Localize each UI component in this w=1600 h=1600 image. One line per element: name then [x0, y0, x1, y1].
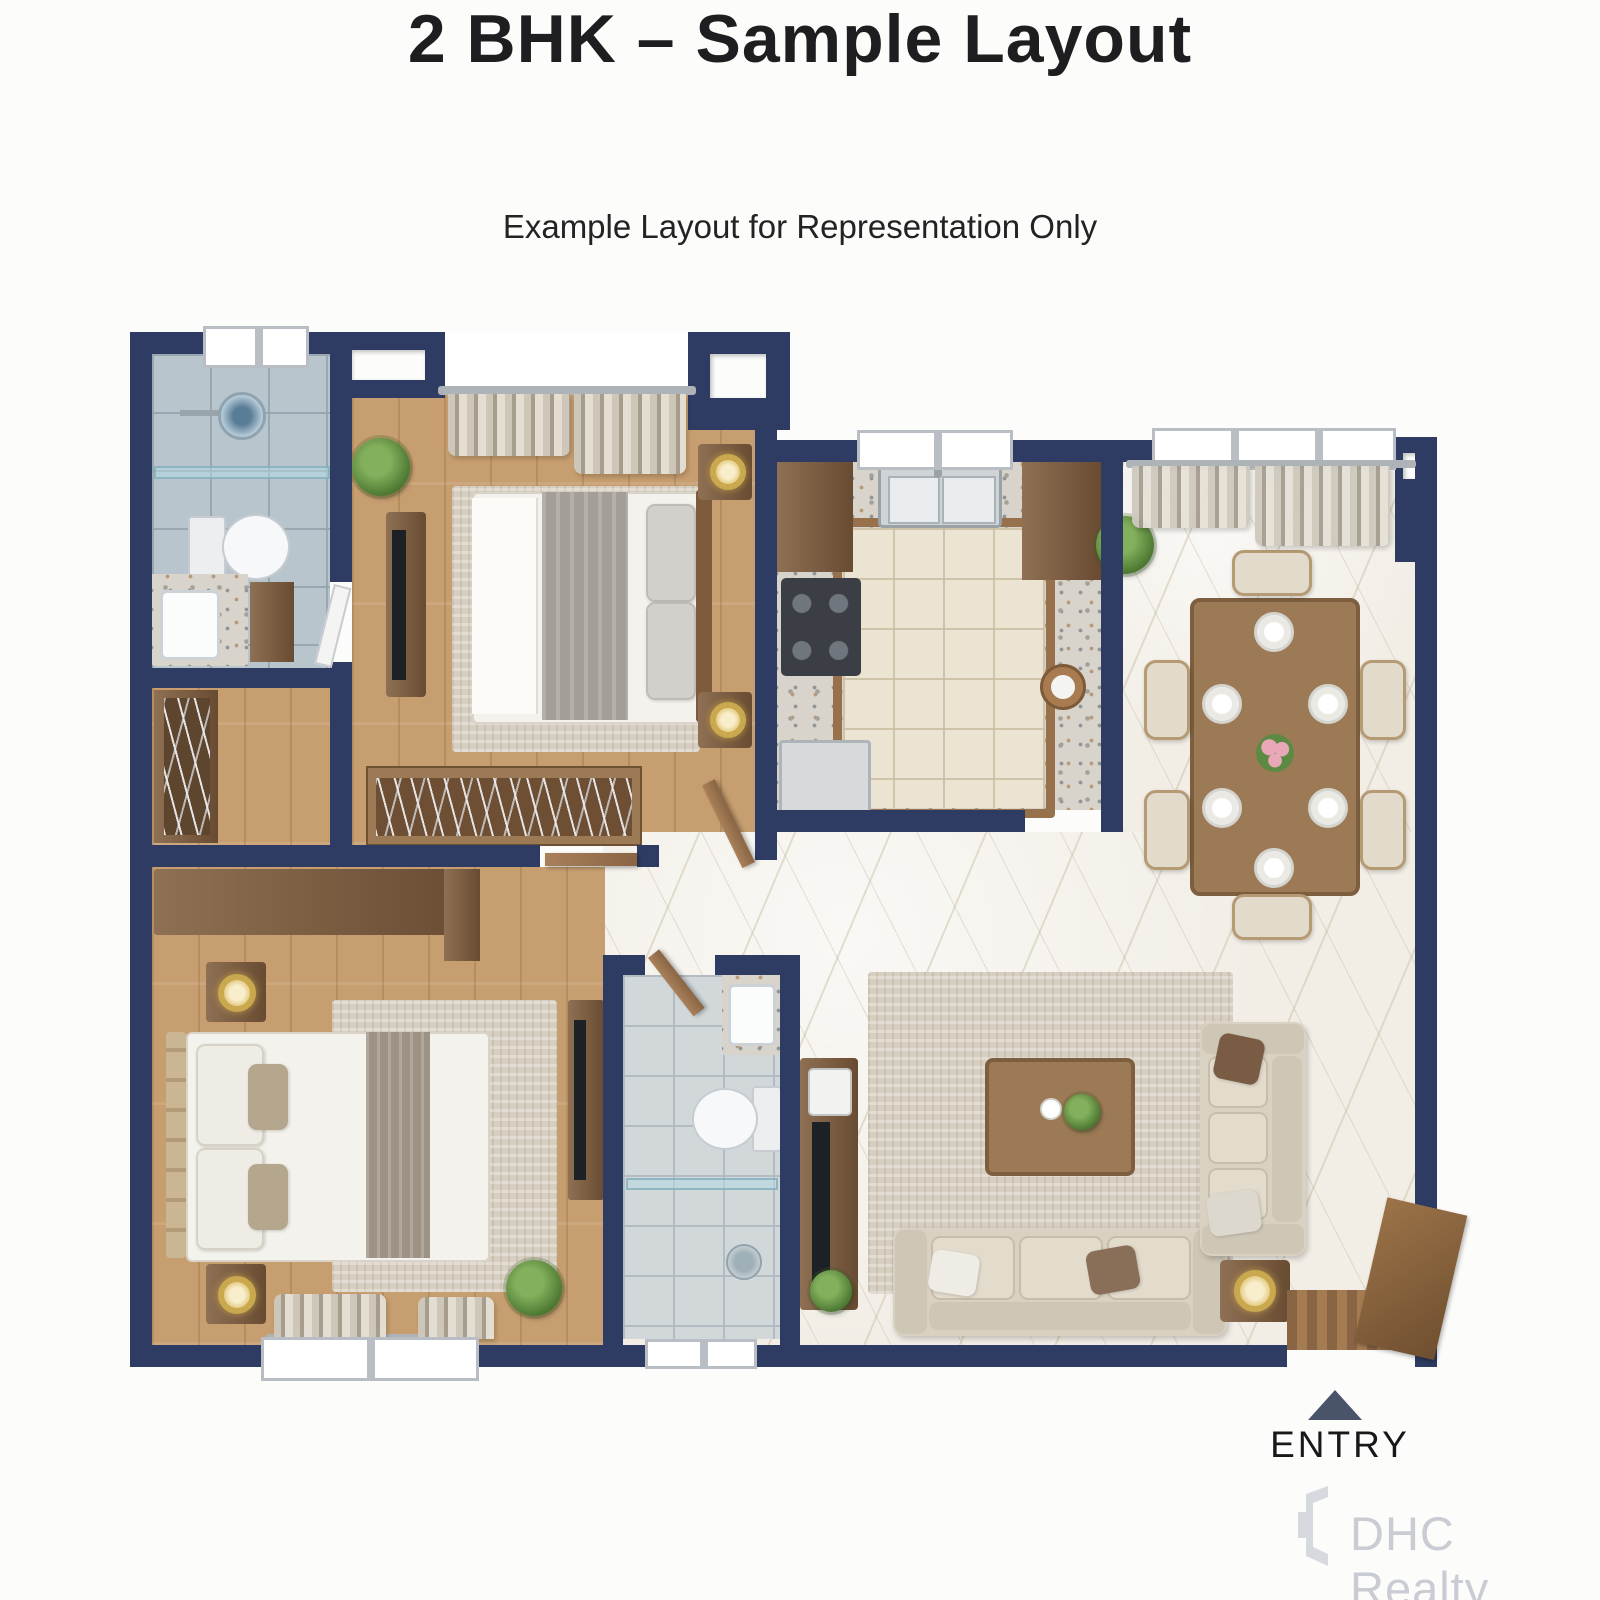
dining-chair: [1232, 550, 1312, 596]
plant: [506, 1260, 562, 1316]
wardrobe-hanging-rail: [164, 698, 210, 835]
dining-chair: [1144, 790, 1190, 870]
watermark-text: DHC Realty: [1350, 1506, 1600, 1600]
wall-kitchen-right: [1101, 440, 1123, 832]
tv-screen: [812, 1122, 830, 1287]
window-kitchen: [857, 430, 1013, 470]
pillow: [248, 1164, 288, 1230]
dining-chair: [1360, 660, 1406, 740]
wall-kitchen-bottom: [755, 810, 1025, 832]
wall-bath2-right: [780, 955, 800, 1345]
table-lamp: [710, 702, 746, 738]
bed-1-headboard: [696, 490, 712, 722]
wardrobe-rail-clothes: [376, 778, 632, 836]
plate: [1308, 788, 1348, 828]
table-lamp: [218, 1276, 256, 1314]
dining-chair: [1232, 894, 1312, 940]
wall-bedroom-divider: [130, 845, 540, 867]
plant: [810, 1270, 852, 1312]
tv-screen: [392, 530, 406, 680]
window-bedroom-2: [261, 1337, 479, 1381]
wall-bath1-bottom: [130, 668, 352, 688]
entry-arrow-icon: [1308, 1390, 1362, 1420]
speaker: [808, 1068, 852, 1116]
toilet-1-tank: [188, 516, 226, 578]
sofa-cushion: [1208, 1112, 1268, 1164]
dining-chair: [1360, 790, 1406, 870]
kitchen-cabinet-left: [777, 462, 853, 572]
watermark-logo-icon: [1298, 1486, 1342, 1566]
table-lamp: [218, 974, 256, 1012]
page-title: 2 BHK – Sample Layout: [0, 0, 1600, 78]
kitchen-cabinet-right: [1022, 462, 1101, 580]
plate: [1202, 684, 1242, 724]
curtain: [418, 1297, 494, 1339]
wall-niche: [350, 350, 425, 380]
pillow: [1205, 1189, 1262, 1238]
window-bathroom-2: [645, 1339, 757, 1369]
wall-niche: [710, 354, 766, 398]
sink-basin: [888, 476, 940, 524]
pillow: [646, 602, 696, 700]
curtain: [574, 394, 686, 474]
coffee-table: [985, 1058, 1135, 1176]
window-band-bedroom-1: [445, 332, 688, 392]
pillow: [927, 1249, 981, 1298]
floor-plan-page: 2 BHK – Sample Layout Example Layout for…: [0, 0, 1600, 1600]
curtain: [448, 394, 570, 456]
coffee-cup: [1040, 1098, 1062, 1120]
bed-1-blanket: [542, 492, 628, 720]
shower-glass-shelf: [626, 1178, 778, 1190]
hob-cooktop: [781, 578, 861, 676]
plate: [1308, 684, 1348, 724]
plate: [1202, 788, 1242, 828]
sink-basin: [942, 476, 996, 524]
wall-stub: [637, 845, 659, 867]
window-bathroom-1: [203, 326, 309, 368]
pillow: [248, 1064, 288, 1130]
table-centerpiece-flowers: [1256, 734, 1294, 772]
page-subtitle: Example Layout for Representation Only: [0, 208, 1600, 246]
sofa-backrest: [1272, 1056, 1302, 1222]
wardrobe-bedroom-2: [154, 869, 479, 935]
wall-bath1-right-lower: [330, 662, 352, 867]
vanity-cabinet: [250, 582, 294, 662]
plant: [1064, 1094, 1100, 1130]
entry-label: ENTRY: [1240, 1424, 1440, 1466]
plant: [352, 438, 410, 496]
plate: [1254, 848, 1294, 888]
dining-chair: [1144, 660, 1190, 740]
wardrobe-return: [444, 869, 480, 961]
toilet-1-bowl: [222, 514, 290, 580]
wall-bath2-left: [603, 955, 623, 1345]
sofa-backrest: [929, 1302, 1191, 1330]
wall-kitchen-left: [755, 430, 777, 860]
shower-glass-partition: [154, 466, 330, 479]
table-lamp: [1234, 1270, 1276, 1312]
pillow: [646, 504, 696, 602]
washbasin-2: [728, 984, 776, 1046]
washbasin-1: [160, 590, 220, 660]
toilet-2-bowl: [692, 1088, 758, 1150]
door-bedroom-2: [545, 853, 637, 866]
plate: [1254, 612, 1294, 652]
bed-1-sheet-fold: [472, 498, 538, 714]
shower-head-icon: [218, 392, 266, 440]
refrigerator: [779, 740, 871, 820]
shower-drain: [726, 1244, 762, 1280]
pillow: [1085, 1244, 1142, 1296]
tv-screen: [574, 1020, 586, 1180]
curtain: [1132, 466, 1250, 528]
curtain: [1255, 466, 1390, 546]
pillow: [1212, 1032, 1267, 1087]
bed-2-headboard: [166, 1032, 186, 1258]
wall-bath1-right-upper: [330, 332, 352, 582]
bed-2-throw-blanket: [366, 1032, 430, 1258]
stool-plate: [1051, 675, 1075, 699]
table-lamp: [710, 454, 746, 490]
sofa-armrest: [895, 1230, 927, 1334]
curtain: [274, 1294, 386, 1339]
